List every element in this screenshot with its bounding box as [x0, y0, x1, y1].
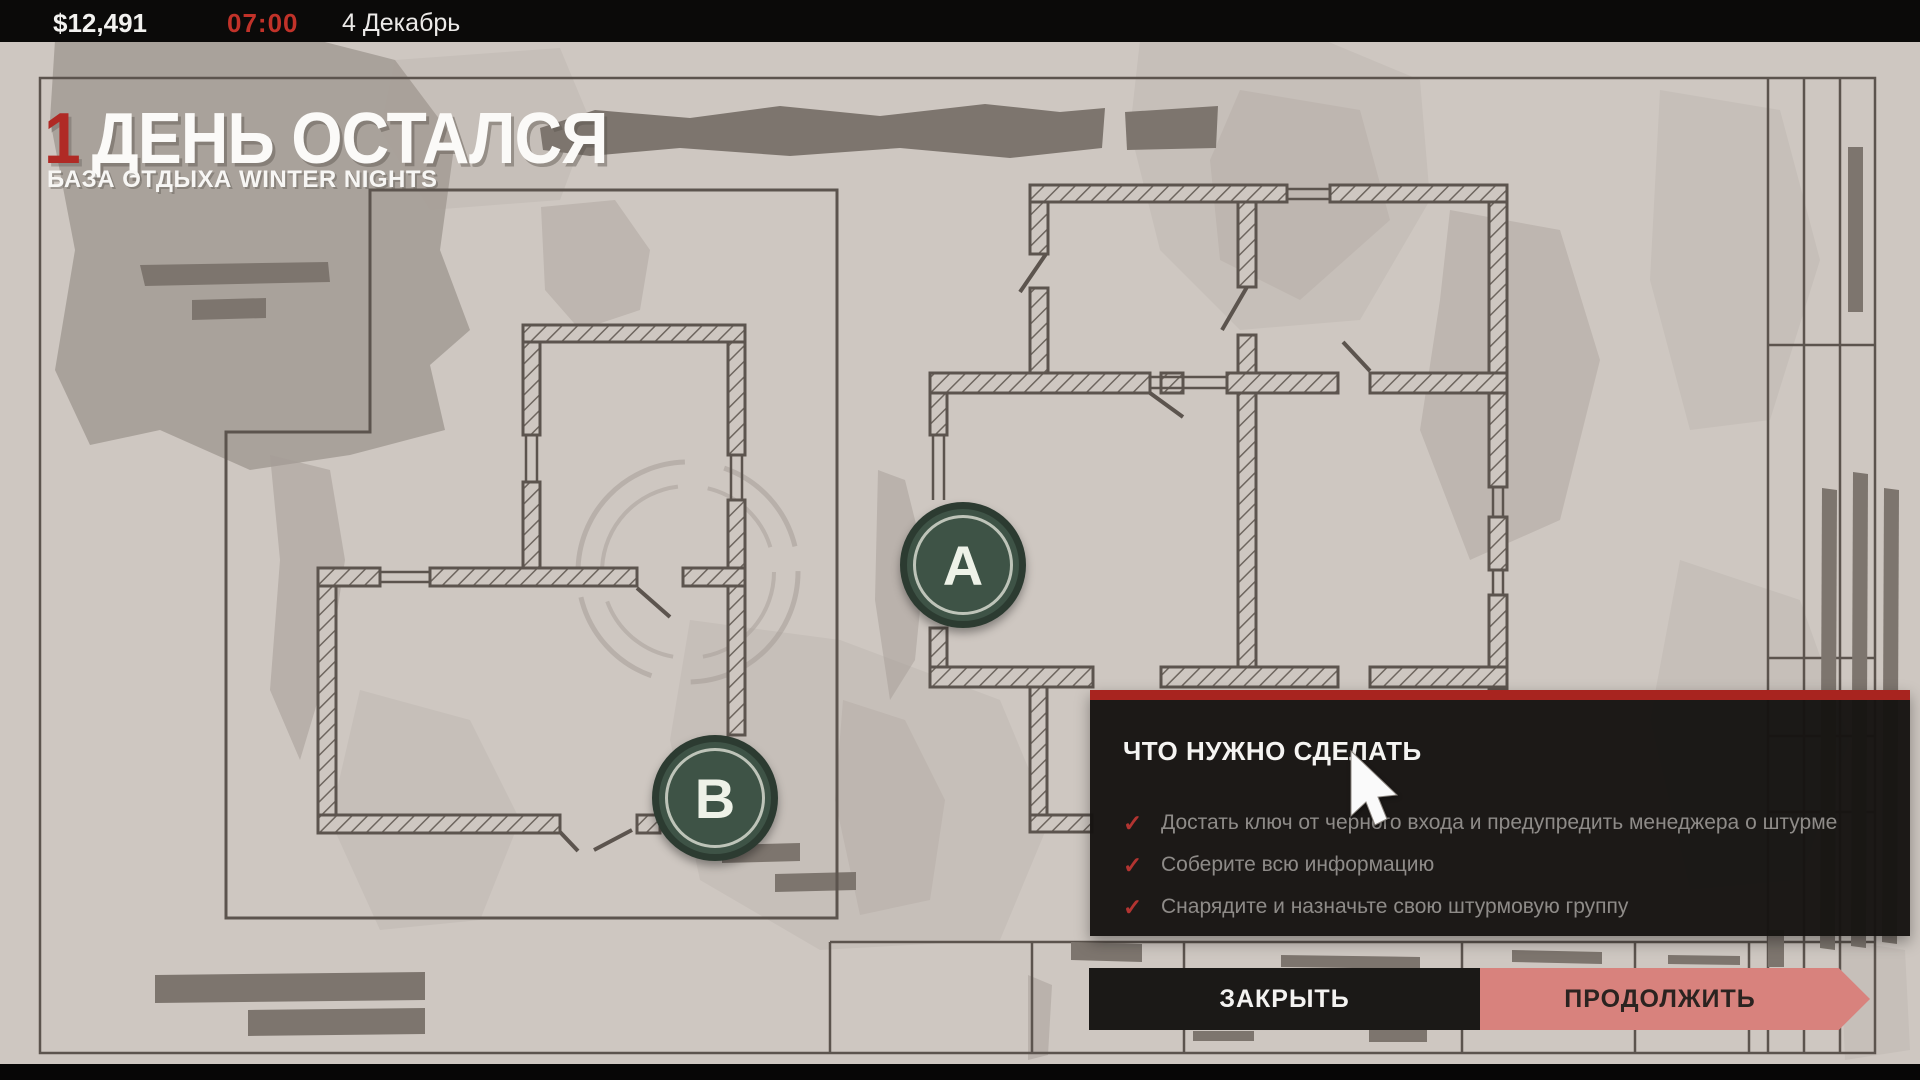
objective-item: ✓ Достать ключ от черного входа и предуп…	[1123, 810, 1837, 837]
mouse-cursor-icon	[1350, 750, 1402, 828]
objective-text: Достать ключ от черного входа и предупре…	[1161, 810, 1837, 836]
check-icon: ✓	[1123, 894, 1161, 921]
bottom-letterbox-bar	[0, 1064, 1920, 1080]
marker-a-label: A	[907, 509, 1019, 621]
continue-button-label: ПРОДОЛЖИТЬ	[1564, 985, 1755, 1014]
check-icon: ✓	[1123, 852, 1161, 879]
game-screen: $12,491 07:00 4 Декабрь 1ДЕНЬ ОСТАЛСЯ БА…	[0, 0, 1920, 1080]
marker-b-label: B	[659, 742, 771, 854]
check-icon: ✓	[1123, 810, 1161, 837]
close-button-label: ЗАКРЫТЬ	[1219, 985, 1349, 1014]
building-b-windows	[380, 435, 742, 582]
close-button[interactable]: ЗАКРЫТЬ	[1089, 968, 1480, 1030]
objectives-panel: ЧТО НУЖНО СДЕЛАТЬ ✓ Достать ключ от черн…	[1090, 690, 1910, 936]
map-marker-b[interactable]: B	[652, 735, 778, 861]
objective-text: Соберите всю информацию	[1161, 852, 1434, 878]
objective-text: Снарядите и назначьте свою штурмовую гру…	[1161, 894, 1628, 920]
objective-item: ✓ Соберите всю информацию	[1123, 852, 1434, 879]
location-subtitle: БАЗА ОТДЫХА WINTER NIGHTS	[47, 166, 438, 194]
date-label: 4 Декабрь	[342, 9, 460, 38]
money-label: $12,491	[53, 8, 147, 39]
continue-button[interactable]: ПРОДОЛЖИТЬ	[1480, 968, 1870, 1030]
clock-label: 07:00	[227, 8, 299, 39]
top-status-bar: $12,491 07:00 4 Декабрь	[0, 0, 1920, 42]
map-marker-a[interactable]: A	[900, 502, 1026, 628]
objective-item: ✓ Снарядите и назначьте свою штурмовую г…	[1123, 894, 1628, 921]
